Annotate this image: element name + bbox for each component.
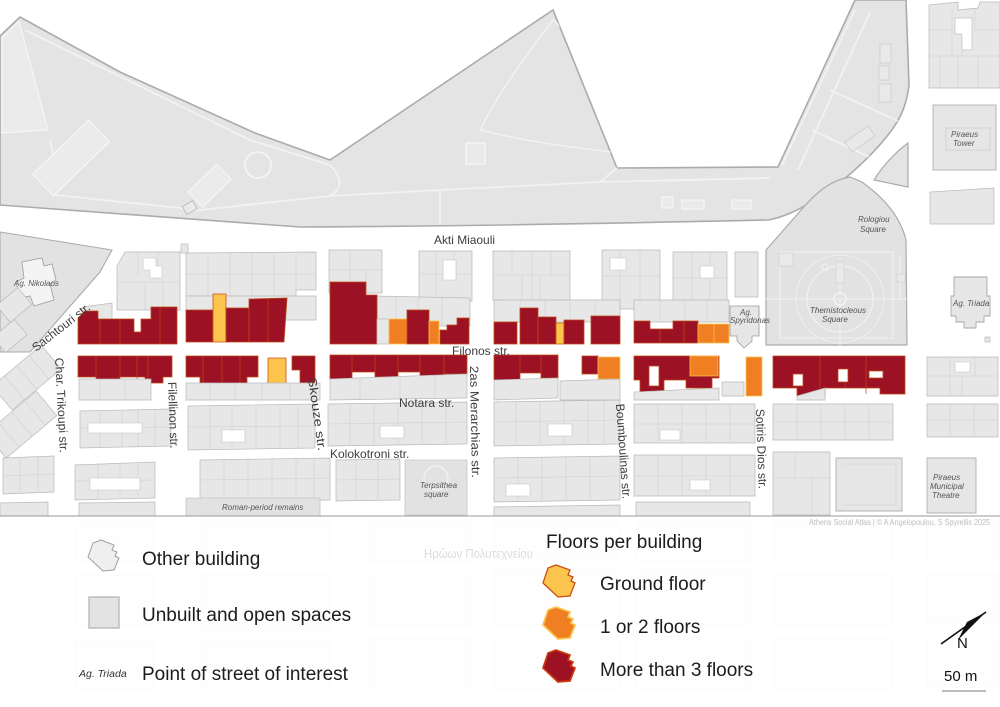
svg-text:1 or 2 floors: 1 or 2 floors — [600, 617, 700, 638]
svg-text:Square: Square — [822, 315, 848, 324]
svg-text:Piraeus: Piraeus — [933, 473, 960, 482]
svg-text:Filonos str.: Filonos str. — [452, 344, 510, 358]
svg-text:2as Merarchias str.: 2as Merarchias str. — [467, 366, 483, 478]
svg-text:More than 3 floors: More than 3 floors — [600, 660, 753, 681]
svg-text:Terpsithea: Terpsithea — [420, 481, 458, 490]
svg-text:Spyridonas: Spyridonas — [730, 316, 770, 325]
svg-text:Kolokotroni str.: Kolokotroni str. — [330, 447, 409, 461]
svg-text:Square: Square — [860, 225, 886, 234]
svg-text:Notara str.: Notara str. — [399, 396, 454, 410]
svg-text:Ground floor: Ground floor — [600, 574, 706, 595]
svg-text:Rologiou: Rologiou — [858, 215, 890, 224]
svg-text:Ag. Nikolaos: Ag. Nikolaos — [13, 279, 59, 288]
svg-text:Athens Social Atlas | © A Ange: Athens Social Atlas | © A Angelopoulou, … — [809, 518, 990, 527]
svg-text:Roman-period remains: Roman-period remains — [222, 503, 303, 512]
svg-text:square: square — [424, 490, 449, 499]
svg-text:Other building: Other building — [142, 549, 260, 570]
svg-text:Themistocleous: Themistocleous — [810, 306, 866, 315]
svg-text:Ηρώων Πολυτεχνείου: Ηρώων Πολυτεχνείου — [424, 547, 533, 561]
svg-text:Filellinon str.: Filellinon str. — [165, 382, 181, 449]
svg-text:Unbuilt and open spaces: Unbuilt and open spaces — [142, 605, 351, 626]
svg-text:Piraeus: Piraeus — [951, 130, 978, 139]
svg-text:Floors per building: Floors per building — [546, 532, 702, 553]
svg-text:Akti Miaouli: Akti Miaouli — [434, 233, 495, 247]
svg-text:Ag. Triada: Ag. Triada — [78, 668, 127, 680]
svg-text:Municipal: Municipal — [930, 482, 964, 491]
svg-text:Sotiris Dios str.: Sotiris Dios str. — [753, 409, 770, 489]
svg-text:50 m: 50 m — [944, 668, 977, 685]
svg-text:Ag. Triada: Ag. Triada — [952, 299, 990, 308]
svg-text:Tower: Tower — [953, 139, 975, 148]
svg-text:Theatre: Theatre — [932, 491, 960, 500]
svg-text:N: N — [957, 635, 968, 652]
svg-text:Point of street of interest: Point of street of interest — [142, 664, 349, 685]
